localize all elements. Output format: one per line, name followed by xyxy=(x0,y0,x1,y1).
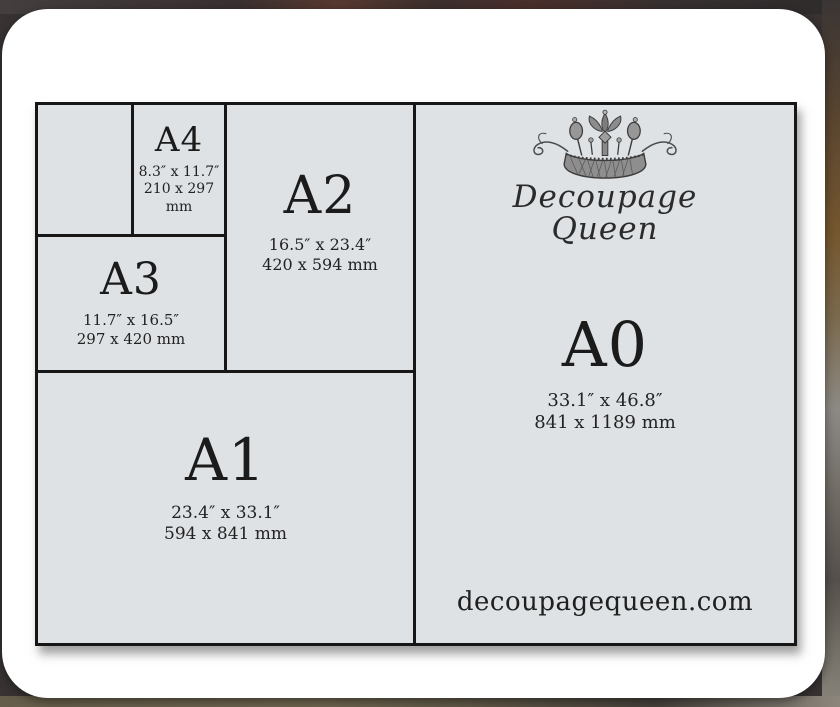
cell-a1: A1 23.4″ x 33.1″ 594 x 841 mm xyxy=(38,373,413,643)
size-label-a2: A2 xyxy=(284,170,357,222)
size-inches-a1: 23.4″ x 33.1″ xyxy=(164,503,287,524)
size-dimensions-a3: 11.7″ x 16.5″ 297 x 420 mm xyxy=(77,311,185,349)
size-mm-a3: 297 x 420 mm xyxy=(77,330,185,349)
brand-block: Decoupage Queen xyxy=(416,109,794,245)
cell-a0: Decoupage Queen A0 33.1″ x 46.8″ 841 x 1… xyxy=(416,105,794,643)
brand-name: Decoupage Queen xyxy=(513,181,698,245)
size-label-a3: A3 xyxy=(100,258,162,302)
website-text: decoupagequeen.com xyxy=(416,587,794,617)
size-inches-a4: 8.3″ x 11.7″ xyxy=(134,164,224,182)
size-mm-a4: 210 x 297 mm xyxy=(134,181,224,216)
size-inches-a2: 16.5″ x 23.4″ xyxy=(262,235,378,255)
brand-name-line2: Queen xyxy=(513,213,698,245)
size-dimensions-a0: 33.1″ x 46.8″ 841 x 1189 mm xyxy=(534,390,676,435)
brand-name-line1: Decoupage xyxy=(513,181,698,213)
size-mm-a2: 420 x 594 mm xyxy=(262,255,378,275)
size-label-a1: A1 xyxy=(185,431,266,489)
cell-a2: A2 16.5″ x 23.4″ 420 x 594 mm xyxy=(227,105,413,370)
cell-a4: A4 8.3″ x 11.7″ 210 x 297 mm xyxy=(134,105,224,234)
size-inches-a3: 11.7″ x 16.5″ xyxy=(77,311,185,330)
size-dimensions-a2: 16.5″ x 23.4″ 420 x 594 mm xyxy=(262,235,378,275)
size-label-a4: A4 xyxy=(155,123,203,157)
diagram-grid: A4 8.3″ x 11.7″ 210 x 297 mm A3 11.7″ x … xyxy=(38,105,794,643)
size-mm-a0: 841 x 1189 mm xyxy=(534,412,676,435)
crown-icon xyxy=(524,109,686,183)
product-card: A4 8.3″ x 11.7″ 210 x 297 mm A3 11.7″ x … xyxy=(2,9,825,698)
cell-blank xyxy=(38,105,131,234)
cell-a3: A3 11.7″ x 16.5″ 297 x 420 mm xyxy=(38,237,224,370)
size-label-a0: A0 xyxy=(562,314,648,376)
size-inches-a0: 33.1″ x 46.8″ xyxy=(534,390,676,413)
size-dimensions-a4: 8.3″ x 11.7″ 210 x 297 mm xyxy=(134,164,224,217)
paper-size-diagram: A4 8.3″ x 11.7″ 210 x 297 mm A3 11.7″ x … xyxy=(35,102,797,646)
size-mm-a1: 594 x 841 mm xyxy=(164,524,287,545)
size-dimensions-a1: 23.4″ x 33.1″ 594 x 841 mm xyxy=(164,503,287,546)
